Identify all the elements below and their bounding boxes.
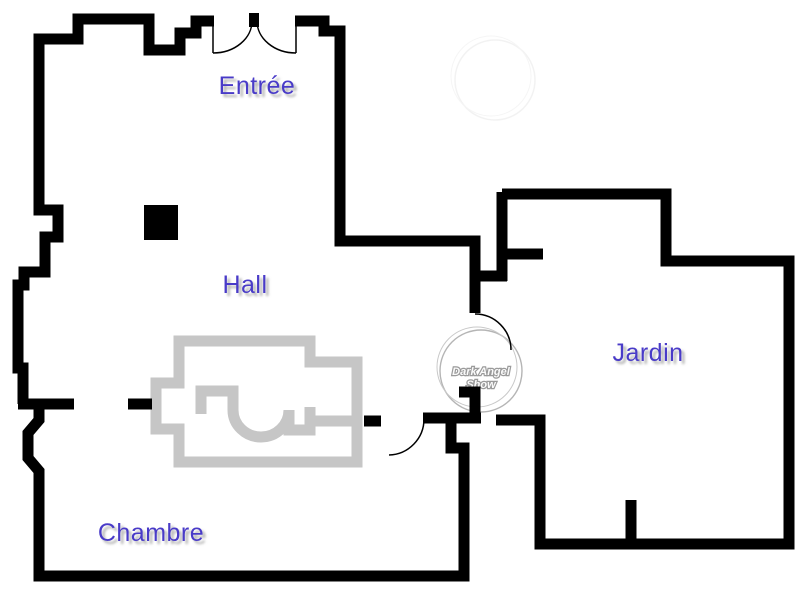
furniture-inner-shape	[201, 391, 310, 437]
floorplan-drawing: Dark Angel Show	[0, 0, 800, 600]
room-label-chambre: Chambre	[98, 519, 204, 547]
wall-left	[18, 39, 58, 404]
wall-top-left	[39, 19, 214, 58]
chambre-door-arc-icon	[389, 419, 424, 455]
furniture-outline	[156, 341, 357, 462]
room-label-hall: Hall	[222, 271, 267, 299]
walls	[18, 19, 789, 576]
room-label-jardin: Jardin	[612, 339, 683, 367]
floorplan-canvas: Dark Angel Show	[0, 0, 800, 600]
entrance-door-right-arc-icon	[257, 21, 296, 53]
watermark-line1: Dark Angel	[452, 366, 511, 378]
wall-jardin-outline	[496, 194, 789, 544]
watermark-ghost	[451, 36, 535, 120]
wall-top-right-east	[295, 21, 475, 313]
room-label-entree: Entrée	[219, 72, 296, 100]
entrance-door-left-arc-icon	[213, 21, 252, 53]
pillar	[144, 205, 178, 240]
furniture-outer-shape	[156, 341, 357, 462]
